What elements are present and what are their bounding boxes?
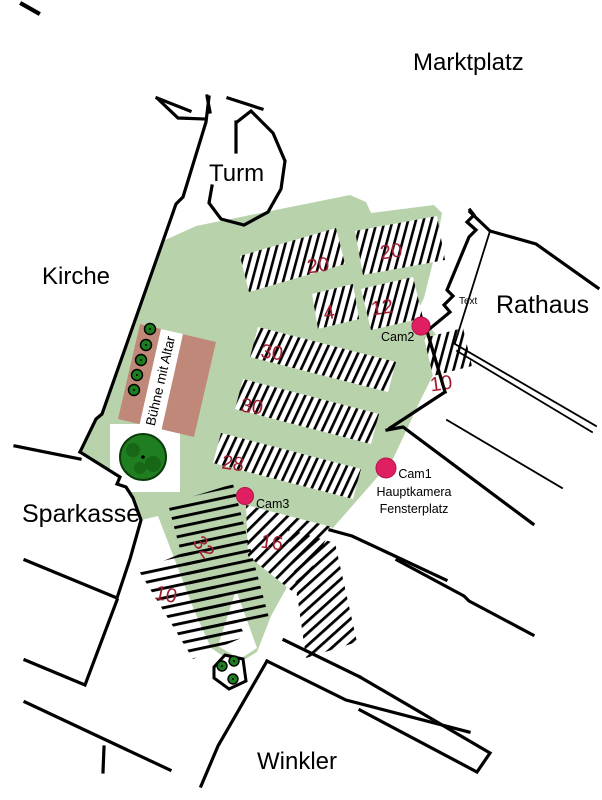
label-sparkasse: Sparkasse <box>22 500 140 528</box>
seat-count-20-left: 20 <box>306 254 331 279</box>
label-text-note: Text <box>459 296 478 307</box>
seat-count-10-left: 10 <box>153 582 179 608</box>
camera-label: Cam1 <box>398 467 431 481</box>
seat-count-12: 12 <box>370 296 395 321</box>
fence-double-line-a <box>455 344 596 426</box>
seat-count-28: 28 <box>220 452 245 477</box>
seat-count-20-right: 20 <box>379 240 404 265</box>
label-marktplatz: Marktplatz <box>413 49 524 76</box>
seat-count-30-lower: 30 <box>239 395 264 420</box>
camera-cam1: Cam1 Hauptkamera Fensterplatz <box>376 458 452 516</box>
camera-label: Cam3 <box>256 497 289 511</box>
label-rathaus: Rathaus <box>496 291 589 319</box>
tree-icon <box>120 434 166 480</box>
camera-dot <box>412 317 430 335</box>
label-winkler: Winkler <box>257 748 337 775</box>
camera-sublabel: Hauptkamera <box>376 485 451 499</box>
label-kirche: Kirche <box>42 263 110 290</box>
corner-mark <box>22 4 38 13</box>
fence-double-line-b <box>457 351 592 432</box>
camera-dot <box>237 488 254 505</box>
label-turm: Turm <box>209 160 264 187</box>
seat-count-16: 16 <box>259 531 284 556</box>
camera-dot <box>376 458 396 478</box>
seat-count-30-upper: 30 <box>259 341 284 366</box>
camera-label: Cam2 <box>381 330 414 344</box>
camera-sublabel: Fensterplatz <box>380 502 449 516</box>
market-square-map: Bühne mit Altar 20 20 4 12 10 30 30 28 1… <box>0 0 602 800</box>
site-map-svg: Bühne mit Altar 20 20 4 12 10 30 30 28 1… <box>0 0 602 800</box>
bush-icon <box>141 340 152 351</box>
planter-structure <box>214 655 246 689</box>
bush-icon <box>145 324 156 335</box>
block-unnumbered <box>288 529 357 658</box>
bush-icon <box>132 370 143 381</box>
bush-icon <box>136 355 147 366</box>
bush-icon <box>129 385 140 396</box>
